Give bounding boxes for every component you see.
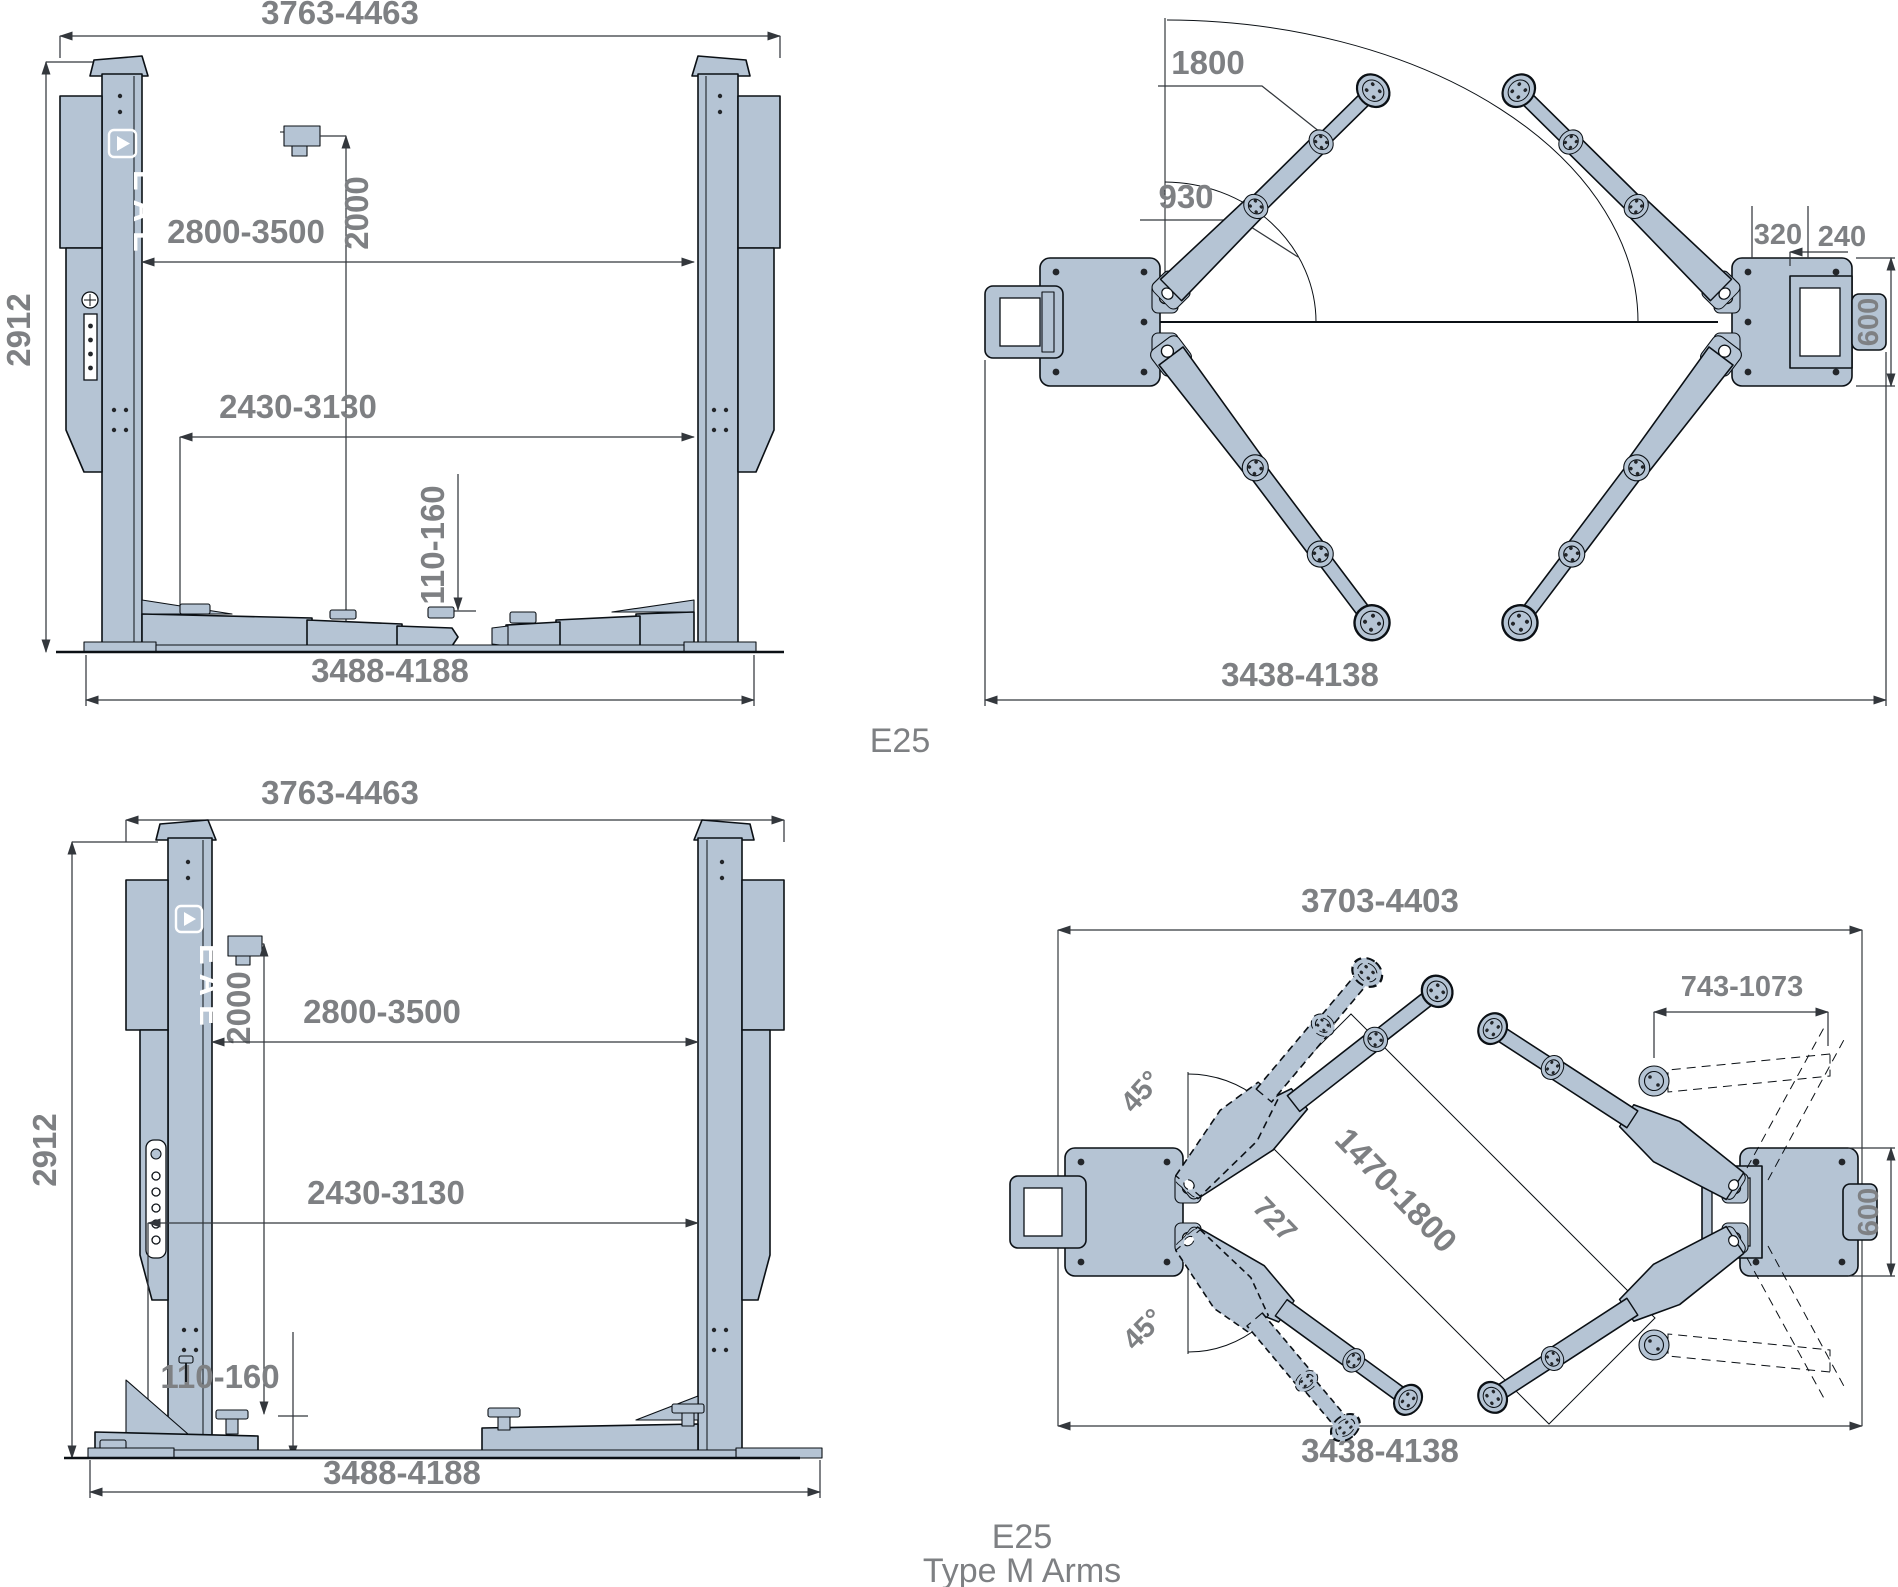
left-base-plate: [1010, 1148, 1201, 1276]
plan-view-type-m: 3703-4403 3438-4138: [1010, 882, 1895, 1469]
dim-outer-width: 3438-4138: [1058, 1426, 1862, 1469]
arm-right-retracted-lower: [1639, 1330, 1830, 1372]
dim-label-height: 2912: [0, 293, 37, 366]
dim-label-overall-width: 3763-4463: [261, 774, 419, 811]
dim-label-base-width: 3488-4188: [311, 652, 469, 689]
dim-base-width: 3488-4188: [86, 652, 754, 706]
dim-label-600: 600: [1853, 1188, 1885, 1236]
front-view-type-m: 3763-4463 2912 EAE: [26, 774, 822, 1498]
dim-label-600: 600: [1853, 298, 1885, 346]
dim-label-arm-min: 727: [1246, 1191, 1303, 1248]
model-caption-top: E25: [870, 722, 931, 760]
brand-text: EAE: [127, 170, 162, 261]
dim-pad-height: 110-160: [414, 474, 476, 611]
dim-label-overall-width: 3763-4463: [261, 0, 419, 31]
dim-label-base-width: 3488-4188: [323, 1454, 481, 1491]
dim-arm-extension: 743-1073: [1654, 971, 1828, 1058]
plan-view-standard: 1800 930: [985, 18, 1895, 706]
dim-label-pad-height: 110-160: [414, 485, 451, 604]
left-column: EAE: [60, 56, 162, 652]
dim-anchor-offsets: 320 240: [1752, 206, 1866, 266]
dim-label-arm-range: 1470-1800: [1328, 1120, 1464, 1259]
dim-label-outer-width: 3438-4138: [1301, 1432, 1459, 1469]
arm-rear-left-swung: [1167, 1221, 1371, 1452]
dim-base-width: 3488-4188: [90, 1454, 820, 1498]
dim-label-photocell: 2000: [338, 176, 375, 249]
photocell-unit: [280, 126, 320, 156]
arm-front-right: [1496, 68, 1743, 312]
dim-label-outer-width: 3438-4138: [1221, 656, 1379, 693]
dim-overall-width: 3703-4403: [1058, 882, 1862, 930]
model-caption-bottom: E25: [992, 1518, 1053, 1556]
dim-reach-max: 1800: [1158, 44, 1330, 140]
dim-label-photocell: 2000: [220, 971, 257, 1044]
dim-label-arm-extension: 743-1073: [1681, 971, 1804, 1003]
dim-clear-width-upper: 2800-3500: [142, 213, 694, 262]
right-column: [694, 820, 784, 1458]
dim-label-overall-width: 3703-4403: [1301, 882, 1459, 919]
arm-right-retracted-upper: [1639, 1054, 1830, 1096]
dim-label-clear-lower: 2430-3130: [307, 1174, 465, 1211]
dim-label-reach-max: 1800: [1171, 44, 1244, 81]
lock-release-bracket: [82, 292, 98, 380]
arm-front-right: [1468, 1001, 1752, 1209]
dim-label-240: 240: [1818, 221, 1866, 253]
dim-label-clear-upper: 2800-3500: [303, 993, 461, 1030]
dim-label-angle-upper: 45°: [1115, 1065, 1168, 1119]
arm-rear-right: [1468, 1217, 1752, 1425]
reach-construction: 727 1470-1800: [1245, 1014, 1655, 1424]
lift-dimension-drawing: 3763-4463 2912 EAE: [0, 0, 1898, 1587]
right-column: [692, 56, 780, 652]
right-lift-arm-m: [482, 1396, 704, 1458]
dim-photocell-height: 2000: [220, 944, 264, 1414]
dim-label-clear-upper: 2800-3500: [167, 213, 325, 250]
left-base-plate: [985, 258, 1178, 386]
arm-rear-right: [1495, 333, 1744, 648]
diagram-canvas: 3763-4463 2912 EAE: [0, 0, 1898, 1587]
dim-plate-depth: 600: [1853, 258, 1895, 386]
dim-clear-width-upper: 2800-3500: [212, 993, 698, 1042]
dim-label-pad-height: 110-160: [160, 1358, 279, 1395]
control-panel: [146, 1140, 166, 1258]
dim-clear-width-lower: 2430-3130: [148, 1174, 698, 1445]
front-view-standard: 3763-4463 2912 EAE: [0, 0, 784, 706]
dim-label-clear-lower: 2430-3130: [219, 388, 377, 425]
arm-rear-left: [1147, 333, 1396, 648]
dim-overall-width: 3763-4463: [126, 774, 784, 842]
dim-label-reach-min: 930: [1158, 178, 1213, 215]
dim-label-320: 320: [1754, 219, 1802, 251]
photocell-unit: [228, 936, 262, 965]
dim-outer-width: 3438-4138: [985, 352, 1886, 706]
dim-label-height: 2912: [26, 1113, 63, 1186]
dim-overall-width: 3763-4463: [60, 0, 780, 58]
variant-caption: Type M Arms: [923, 1552, 1121, 1587]
dim-label-angle-lower: 45°: [1117, 1303, 1171, 1357]
